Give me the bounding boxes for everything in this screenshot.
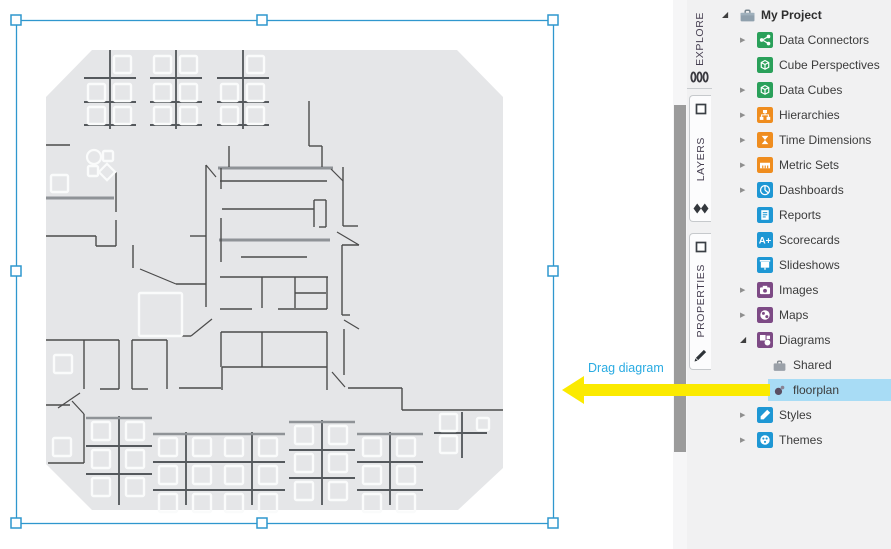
tree-item-label: Hierarchies (779, 108, 840, 122)
svg-text:A+: A+ (759, 235, 772, 246)
tree-item-label: My Project (761, 8, 822, 22)
tree-item-data-connectors[interactable]: ▶ Data Connectors (712, 27, 891, 52)
datacube-icon (757, 82, 773, 98)
hourglass-icon (757, 132, 773, 148)
expander-icon[interactable]: ▶ (740, 111, 754, 119)
tab-separator (687, 88, 712, 89)
expander-icon[interactable]: ▶ (740, 86, 754, 94)
tree-item-label: Shared (793, 358, 832, 372)
expander-icon[interactable]: ◢ (740, 335, 754, 344)
selection-handle-se[interactable] (548, 518, 558, 528)
tree-item-body[interactable]: Data Cubes (754, 79, 891, 101)
tree-item-label: Images (779, 283, 818, 297)
database-icon (690, 71, 709, 83)
expander-icon[interactable]: ▶ (740, 136, 754, 144)
tree-item-reports[interactable]: Reports (712, 202, 891, 227)
tree-item-label: Data Connectors (779, 33, 869, 47)
tree-item-body[interactable]: floorplan (768, 379, 891, 401)
drag-arrow-icon (555, 370, 775, 410)
panel-square-icon (695, 103, 707, 115)
tree-item-label: Themes (779, 433, 822, 447)
report-icon (757, 207, 773, 223)
tab-layers-label: LAYERS (695, 137, 707, 181)
briefcase-icon (739, 7, 755, 23)
tree-item-label: Time Dimensions (779, 133, 871, 147)
panel-square-icon (695, 241, 707, 253)
tree-item-cube-perspectives[interactable]: Cube Perspectives (712, 52, 891, 77)
selection-handle-s[interactable] (257, 518, 267, 528)
tree-item-body[interactable]: Slideshows (754, 254, 891, 276)
tree-item-slideshows[interactable]: Slideshows (712, 252, 891, 277)
tree-item-label: Cube Perspectives (779, 58, 880, 72)
shapes-icon (757, 332, 773, 348)
tree-item-label: Metric Sets (779, 158, 839, 172)
tree-item-body[interactable]: Metric Sets (754, 154, 891, 176)
tree-item-maps[interactable]: ▶ Maps (712, 302, 891, 327)
pie-icon (757, 182, 773, 198)
ruler-icon (757, 157, 773, 173)
aplus-icon: A+ (757, 232, 773, 248)
tree-item-label: floorplan (793, 383, 839, 397)
tree-item-body[interactable]: Reports (754, 204, 891, 226)
pencil-icon (693, 348, 708, 363)
tree-item-body[interactable]: Themes (754, 429, 891, 451)
globe-icon (757, 307, 773, 323)
expander-icon[interactable]: ◢ (722, 10, 736, 19)
selection-handle-n[interactable] (257, 15, 267, 25)
tree-item-label: Slideshows (779, 258, 840, 272)
themes-icon (757, 432, 773, 448)
tree-item-body[interactable]: A+Scorecards (754, 229, 891, 251)
cube-icon (757, 57, 773, 73)
tree-item-themes[interactable]: ▶ Themes (712, 427, 891, 452)
tree-item-label: Diagrams (779, 333, 830, 347)
tree-item-diagrams[interactable]: ◢ Diagrams (712, 327, 891, 352)
arrow-polygon (562, 376, 770, 404)
expander-icon[interactable]: ▶ (740, 311, 754, 319)
hierarchy-icon (757, 107, 773, 123)
tree-item-body[interactable]: Images (754, 279, 891, 301)
floorplan-diagram[interactable] (46, 50, 503, 512)
tree-item-label: Styles (779, 408, 812, 422)
tree-item-images[interactable]: ▶ Images (712, 277, 891, 302)
expander-icon[interactable]: ▶ (740, 286, 754, 294)
tree-item-body[interactable]: My Project (736, 4, 891, 26)
vertical-scrollbar[interactable] (673, 0, 687, 549)
toolbar-tabstrip: EXPLORE LAYERS (687, 0, 712, 549)
tab-properties[interactable]: PROPERTIES (689, 233, 711, 370)
selection-handle-e[interactable] (548, 266, 558, 276)
expander-icon[interactable]: ▶ (740, 36, 754, 44)
tree-item-body[interactable]: Maps (754, 304, 891, 326)
tree-item-label: Data Cubes (779, 83, 842, 97)
explore-panel: EXPLORE LAYERS (687, 0, 891, 549)
selection-handle-sw[interactable] (11, 518, 21, 528)
tree-item-label: Reports (779, 208, 821, 222)
camera-icon (757, 282, 773, 298)
tree-item-body[interactable]: Dashboards (754, 179, 891, 201)
tree-item-body[interactable]: Time Dimensions (754, 129, 891, 151)
screen-icon (757, 257, 773, 273)
tree-item-body[interactable]: Diagrams (754, 329, 891, 351)
tree-item-body[interactable]: Shared (768, 354, 891, 376)
tree-item-label: Scorecards (779, 233, 840, 247)
tree-item-scorecards[interactable]: A+Scorecards (712, 227, 891, 252)
expander-icon[interactable]: ▶ (740, 411, 754, 419)
expander-icon[interactable]: ▶ (740, 436, 754, 444)
tree-item-body[interactable]: Hierarchies (754, 104, 891, 126)
tree-item-body[interactable]: Cube Perspectives (754, 54, 891, 76)
tab-properties-label: PROPERTIES (695, 264, 707, 338)
tree-item-label: Dashboards (779, 183, 844, 197)
design-canvas[interactable] (0, 0, 673, 549)
tree-item-hierarchies[interactable]: ▶ Hierarchies (712, 102, 891, 127)
tree-item-body[interactable]: Data Connectors (754, 29, 891, 51)
tree-item-time-dimensions[interactable]: ▶ Time Dimensions (712, 127, 891, 152)
tab-layers[interactable]: LAYERS (689, 95, 711, 222)
tab-explore-label: EXPLORE (694, 12, 706, 66)
tab-explore[interactable]: EXPLORE (687, 0, 712, 88)
canvas-svg (0, 0, 673, 549)
tree-item-metric-sets[interactable]: ▶ Metric Sets (712, 152, 891, 177)
tree-item-dashboards[interactable]: ▶ Dashboards (712, 177, 891, 202)
tree-item-label: Maps (779, 308, 808, 322)
tree-item-data-cubes[interactable]: ▶ Data Cubes (712, 77, 891, 102)
app-window: Drag diagram EXPLORE LAYERS (0, 0, 891, 549)
connectors-icon (757, 32, 773, 48)
layers-diamonds-icon (693, 203, 709, 214)
expander-icon[interactable]: ▶ (740, 161, 754, 169)
tree-item-my-project[interactable]: ◢ My Project (712, 2, 891, 27)
expander-icon[interactable]: ▶ (740, 186, 754, 194)
selection-handle-ne[interactable] (548, 15, 558, 25)
selection-handle-w[interactable] (11, 266, 21, 276)
selection-handle-nw[interactable] (11, 15, 21, 25)
